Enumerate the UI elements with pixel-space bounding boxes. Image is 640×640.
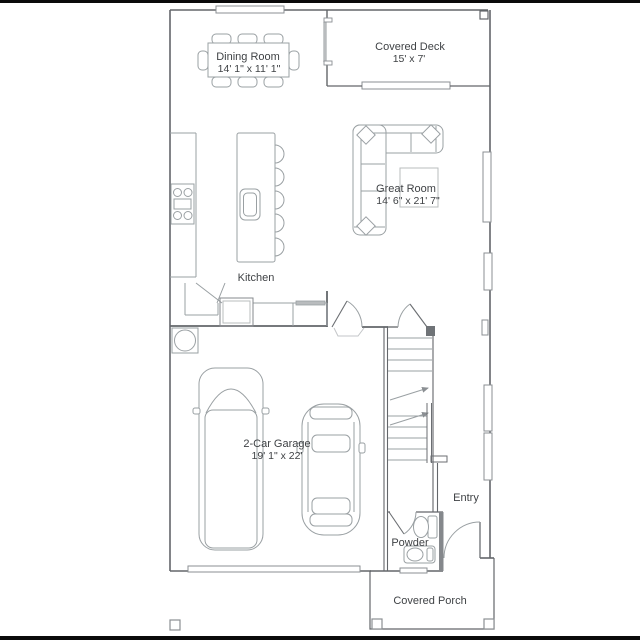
dining-room-label: Dining Room <box>216 51 280 63</box>
garage-door <box>188 566 360 572</box>
dining-window <box>216 6 284 13</box>
car-rear-window <box>310 514 352 526</box>
bar-stool <box>275 214 284 232</box>
stair-treads-lower <box>388 416 427 460</box>
water-heater <box>172 328 198 353</box>
covered-deck-label: Covered Deck <box>375 41 445 53</box>
front-door <box>444 522 480 558</box>
floorplan-page: Dining Room 14' 1" x 11' 1" Covered Deck… <box>0 0 640 640</box>
powder-window <box>400 568 427 573</box>
right-wall-window-4 <box>484 433 492 480</box>
car-windshield <box>310 407 352 419</box>
garage-dimensions: 19' 1" x 22' <box>252 450 303 462</box>
slider-jamb-top <box>324 18 332 22</box>
dining-chair <box>289 51 299 70</box>
car-rear-seat <box>312 498 350 514</box>
great-room-dimensions: 14' 6" x 21' 7" <box>376 195 440 207</box>
counter-appliance <box>296 301 325 305</box>
kitchen-counter-bottom <box>253 303 327 326</box>
car <box>297 404 365 535</box>
truck-mirror <box>262 408 269 414</box>
kitchen-casework <box>170 133 327 326</box>
entry-label: Entry <box>453 492 479 504</box>
stair-door-jamb <box>426 326 435 336</box>
stair-inner-wall <box>427 403 432 463</box>
entry-hall-wall <box>433 463 438 512</box>
bar-stool <box>275 168 284 186</box>
stair-treads-upper <box>388 338 432 371</box>
powder-label: Powder <box>391 537 429 549</box>
dining-chair <box>264 77 283 87</box>
bar-stools <box>275 145 284 256</box>
floorplan-svg: Dining Room 14' 1" x 11' 1" Covered Deck… <box>0 0 640 640</box>
range-stove <box>171 184 194 224</box>
greatroom-window <box>483 152 491 222</box>
bar-stool <box>275 145 284 163</box>
dining-chair <box>198 51 208 70</box>
wall-fixture <box>482 320 488 335</box>
kitchen-label: Kitchen <box>238 272 275 284</box>
covered-porch-label: Covered Porch <box>393 595 466 607</box>
toilet <box>414 516 438 538</box>
stair-arrow-down <box>390 413 428 425</box>
dining-room-dimensions: 14' 1" x 11' 1" <box>218 63 281 75</box>
porch-outline <box>370 558 494 629</box>
car-front-seats <box>312 435 350 452</box>
dining-chair <box>238 77 257 87</box>
porch-post <box>484 619 494 629</box>
sectional-sofa <box>353 125 443 235</box>
truck-mirror <box>193 408 200 414</box>
garage-entry-door <box>332 301 364 336</box>
stair-left-wall <box>384 327 388 571</box>
deck-rail-window <box>362 82 450 89</box>
right-wall-window-2 <box>484 253 492 290</box>
covered-deck-dimensions: 15' x 7' <box>393 53 426 65</box>
stair-arrow-up <box>390 388 428 400</box>
kitchen-counter-corner <box>185 283 225 315</box>
bar-stool <box>275 191 284 209</box>
dishwasher <box>220 298 253 326</box>
great-room-furniture <box>353 125 443 235</box>
right-wall-window-3 <box>484 385 492 431</box>
bottom-letterbox-bar <box>0 636 640 640</box>
bar-stool <box>275 238 284 256</box>
powder-right-wall <box>439 512 444 571</box>
door-threshold <box>334 328 364 336</box>
great-room-label: Great Room <box>376 183 436 195</box>
slider-jamb-bottom <box>324 61 332 65</box>
garage-label: 2-Car Garage <box>243 438 310 450</box>
deck-corner-post <box>480 11 488 19</box>
dining-chair <box>212 77 231 87</box>
car-mirror <box>359 443 365 453</box>
top-letterbox-bar <box>0 0 640 3</box>
porch-post <box>372 619 382 629</box>
kitchen-island <box>237 133 275 262</box>
yard-post <box>170 620 180 630</box>
powder-door <box>389 512 416 534</box>
staircase <box>388 338 447 463</box>
stair-door <box>398 304 427 327</box>
